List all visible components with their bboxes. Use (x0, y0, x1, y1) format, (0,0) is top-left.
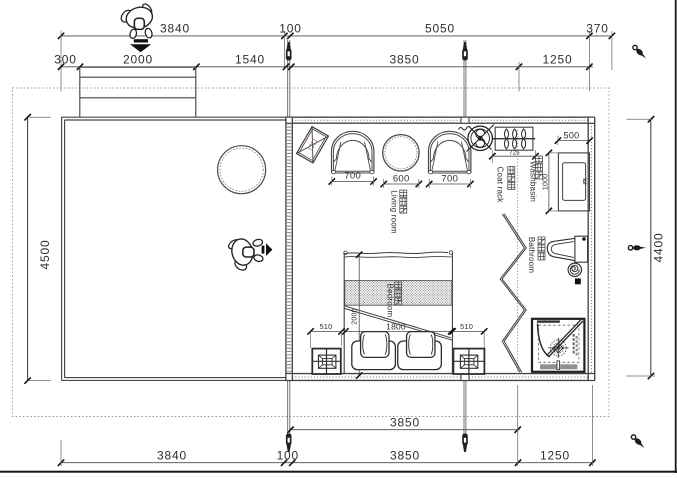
svg-text:1000: 1000 (543, 174, 550, 190)
svg-text:Bathroom: Bathroom (527, 237, 536, 273)
svg-text:2000: 2000 (352, 308, 359, 324)
svg-text:Coat rack: Coat rack (496, 166, 505, 203)
svg-text:Living room: Living room (390, 190, 399, 234)
svg-text:1800: 1800 (386, 321, 406, 331)
svg-text:1250: 1250 (543, 53, 573, 67)
svg-text:500: 500 (564, 130, 580, 140)
svg-text:370: 370 (586, 22, 608, 36)
svg-text:100: 100 (277, 449, 299, 463)
svg-text:Bedroom: Bedroom (386, 284, 395, 318)
svg-text:510: 510 (319, 322, 332, 331)
svg-text:5050: 5050 (425, 22, 455, 36)
svg-text:1250: 1250 (540, 449, 570, 463)
svg-text:725: 725 (509, 150, 520, 156)
svg-text:3850: 3850 (390, 416, 420, 430)
svg-text:Washbasin: Washbasin (529, 161, 538, 202)
svg-text:4400: 4400 (652, 233, 666, 263)
svg-text:300: 300 (54, 53, 76, 67)
svg-text:3850: 3850 (390, 449, 420, 463)
svg-text:1540: 1540 (235, 53, 265, 67)
svg-text:2000: 2000 (123, 53, 153, 67)
svg-text:3840: 3840 (157, 449, 187, 463)
svg-text:510: 510 (460, 322, 473, 331)
svg-text:3840: 3840 (160, 22, 190, 36)
svg-text:700: 700 (344, 171, 361, 182)
svg-text:4500: 4500 (38, 240, 52, 270)
svg-text:600: 600 (393, 173, 410, 184)
svg-text:100: 100 (279, 22, 301, 36)
svg-text:700: 700 (441, 173, 458, 184)
svg-text:3850: 3850 (390, 53, 420, 67)
